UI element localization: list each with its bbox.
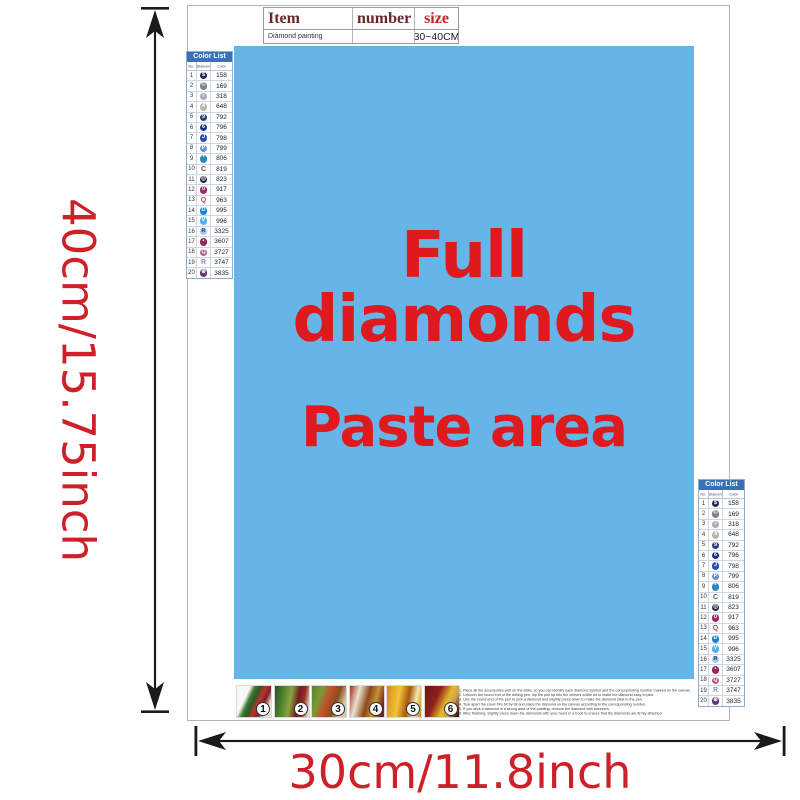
horizontal-shaft [218, 740, 764, 742]
dmc-color-code: 3747 [723, 686, 744, 695]
color-row: 10C819 [187, 165, 232, 175]
color-row-number: 9 [699, 582, 709, 591]
step-number-badge: 2 [294, 702, 308, 716]
step-number-badge: 6 [444, 702, 458, 716]
diamond-symbol-cell: • [197, 237, 211, 246]
dmc-color-code: 792 [723, 541, 744, 550]
dmc-color-code: 648 [211, 102, 232, 111]
dmc-color-code: 819 [211, 165, 232, 174]
vertical-shaft [154, 29, 156, 693]
diamond-symbol-cell: 9 [709, 541, 723, 550]
diamond-symbol-cell: V [197, 216, 211, 225]
diamond-symbol-glyph: • [203, 239, 205, 245]
dmc-color-code: 798 [211, 133, 232, 142]
diamond-color-dot-icon: $ [712, 500, 720, 508]
color-row-number: 3 [187, 92, 197, 101]
diamond-color-dot-icon: • [712, 666, 720, 674]
diamond-color-dot-icon: ≡ [200, 93, 208, 101]
diamond-symbol-glyph: • [715, 667, 717, 673]
diamond-symbol-cell: C [709, 593, 723, 602]
diamond-symbol-glyph: ⊕ [201, 270, 206, 276]
dmc-color-code: 796 [211, 123, 232, 132]
diamond-color-dot-icon: V [200, 217, 208, 225]
dmc-color-code: 3747 [211, 258, 232, 267]
color-column-header: Color [211, 62, 232, 70]
color-row: 66796 [187, 123, 232, 133]
diamond-symbol-cell: ◎ [709, 603, 723, 612]
color-row: 17•3607 [699, 665, 744, 675]
dmc-color-code: 996 [723, 644, 744, 653]
diamond-symbol-letter: C [713, 594, 718, 601]
item-table-header-row: Item number size [264, 8, 458, 30]
dmc-color-code: 806 [723, 582, 744, 591]
color-row-number: 12 [187, 185, 197, 194]
step-number-badge: 1 [256, 702, 270, 716]
color-row: 13Q963 [187, 196, 232, 206]
dmc-color-code: 3835 [723, 696, 744, 705]
color-row-number: 13 [187, 196, 197, 205]
color-row: 16R3325 [187, 227, 232, 237]
diamond-symbol-cell: • [709, 665, 723, 674]
diamond-symbol-cell: * [709, 582, 723, 591]
color-row: 7J798 [187, 133, 232, 143]
color-row-number: 1 [699, 499, 709, 508]
diamond-column-header: Diamond [197, 62, 211, 70]
color-row: 9*806 [699, 582, 744, 592]
color-row-number: 18 [699, 676, 709, 685]
paste-area-subtitle: Paste area [234, 400, 694, 456]
diamond-color-dot-icon: Q [200, 249, 208, 257]
dmc-color-code: 318 [723, 520, 744, 529]
dmc-color-code: 3727 [211, 248, 232, 257]
color-row: 120917 [187, 185, 232, 195]
diamond-symbol-letter: Q [201, 197, 206, 204]
diamond-symbol-glyph: 9 [714, 543, 717, 549]
color-row: 8P799 [699, 572, 744, 582]
dmc-color-code: 3607 [211, 237, 232, 246]
diamond-color-dot-icon: * [200, 155, 208, 163]
step-thumbnail: 5 [386, 685, 422, 718]
color-row-number: 1 [187, 71, 197, 80]
diamond-color-dot-icon: ≡ [712, 521, 720, 529]
diamond-color-dot-icon: P [712, 573, 720, 581]
diamond-symbol-glyph: 6 [714, 553, 717, 559]
top-end-bar [141, 7, 169, 10]
color-row: 9*806 [187, 154, 232, 164]
step-number-badge: 4 [369, 702, 383, 716]
dmc-color-code: 648 [723, 530, 744, 539]
color-list-rows: 1$1582©1693≡3184464859792667967J7988P799… [699, 499, 744, 706]
diamond-symbol-cell: $ [197, 71, 211, 80]
color-row-number: 8 [187, 144, 197, 153]
color-row-number: 15 [187, 216, 197, 225]
diamond-color-dot-icon: 9 [200, 114, 208, 122]
number-header-cell: number [352, 8, 414, 29]
dmc-color-code: 798 [723, 561, 744, 570]
color-row: 16R3325 [699, 655, 744, 665]
color-row: 120917 [699, 613, 744, 623]
diamond-symbol-glyph: D [714, 636, 718, 642]
item-size-table: Item number size Diamond painting 30~40C… [263, 7, 459, 44]
diamond-symbol-glyph: V [714, 646, 718, 652]
dmc-color-code: 917 [211, 185, 232, 194]
diamond-color-dot-icon: ◎ [200, 176, 208, 184]
color-row-number: 5 [699, 541, 709, 550]
color-row: 19R3747 [187, 258, 232, 268]
dmc-color-code: 169 [211, 81, 232, 90]
diamond-symbol-cell: 0 [709, 613, 723, 622]
color-row: 8P799 [187, 144, 232, 154]
diamond-column-header: Diamond [709, 490, 723, 498]
diamond-symbol-cell: Q [197, 196, 211, 205]
dmc-color-code: 823 [211, 175, 232, 184]
color-row: 2©169 [699, 509, 744, 519]
instruction-line: 6. After finishing, slightly press down … [459, 711, 719, 716]
step-thumbnail: 1 [236, 685, 272, 718]
diamond-symbol-cell: R [197, 227, 211, 236]
diamond-symbol-glyph: R [714, 657, 718, 663]
diamond-symbol-cell: ⊕ [197, 268, 211, 277]
diamond-symbol-glyph: V [202, 218, 206, 224]
bottom-end-bar [141, 710, 169, 713]
diamond-symbol-glyph: J [714, 563, 717, 569]
left-end-bar [195, 726, 198, 756]
item-value-cell: Diamond painting [264, 30, 352, 43]
diamond-symbol-cell: © [709, 509, 723, 518]
width-dimension-label: 30cm/11.8inch [289, 745, 632, 799]
diamond-symbol-letter: R [201, 259, 206, 266]
diamond-color-dot-icon: Q [712, 677, 720, 685]
dmc-color-code: 995 [211, 206, 232, 215]
color-row-number: 17 [187, 237, 197, 246]
diamond-symbol-cell: 0 [197, 185, 211, 194]
color-row-number: 9 [187, 154, 197, 163]
dmc-color-code: 3607 [723, 665, 744, 674]
color-row-number: 14 [699, 634, 709, 643]
color-row: 18Q3727 [699, 676, 744, 686]
step-thumbnail: 4 [349, 685, 385, 718]
canvas-poster: Item number size Diamond painting 30~40C… [187, 5, 730, 721]
diamond-symbol-glyph: 4 [202, 104, 205, 110]
color-row-number: 20 [187, 268, 197, 277]
diamond-symbol-cell: D [709, 634, 723, 643]
diamond-symbol-glyph: Q [201, 250, 205, 256]
diamond-symbol-glyph: P [202, 146, 206, 152]
color-row-number: 14 [187, 206, 197, 215]
diamond-color-dot-icon: © [200, 82, 208, 90]
color-list-left: Color List No. Diamond Color 1$1582©1693… [186, 51, 233, 279]
color-row: 44648 [187, 102, 232, 112]
diamond-symbol-cell: J [197, 133, 211, 142]
dmc-color-code: 963 [723, 624, 744, 633]
dmc-color-code: 3325 [211, 227, 232, 236]
diamond-symbol-glyph: 0 [714, 615, 717, 621]
color-row: 18Q3727 [187, 248, 232, 258]
diamond-symbol-glyph: R [202, 229, 206, 235]
color-row-number: 17 [699, 665, 709, 674]
diamond-symbol-glyph: ≡ [714, 522, 717, 528]
diamond-color-dot-icon: 6 [200, 124, 208, 132]
diamond-color-dot-icon: 9 [712, 542, 720, 550]
diamond-symbol-glyph: * [202, 156, 204, 162]
size-header-cell: size [414, 8, 458, 29]
dmc-color-code: 917 [723, 613, 744, 622]
diamond-symbol-cell: Q [709, 676, 723, 685]
diamond-symbol-cell: Q [197, 248, 211, 257]
color-row-number: 11 [699, 603, 709, 612]
height-dimension-label: 40cm/15.75inch [52, 198, 105, 562]
step-thumbnail: 2 [274, 685, 310, 718]
diamond-symbol-cell: C [197, 165, 211, 174]
no-column-header: No. [187, 62, 197, 70]
color-list-header-row: No. Diamond Color [699, 490, 744, 499]
color-row-number: 13 [699, 624, 709, 633]
color-row: 1$158 [187, 71, 232, 81]
diamond-color-dot-icon: 0 [712, 614, 720, 622]
step-thumbnails-strip: 123456 [236, 685, 460, 718]
diamond-symbol-cell: ◎ [197, 175, 211, 184]
diamond-symbol-letter: C [201, 166, 206, 173]
diamond-symbol-cell: ≡ [709, 520, 723, 529]
diamond-color-dot-icon: • [200, 238, 208, 246]
diamond-symbol-cell: R [709, 655, 723, 664]
diamond-symbol-cell: 4 [709, 530, 723, 539]
color-row: 59792 [187, 113, 232, 123]
color-row-number: 19 [187, 258, 197, 267]
dmc-color-code: 996 [211, 216, 232, 225]
vertical-dimension-arrow [139, 5, 171, 717]
dmc-color-code: 796 [723, 551, 744, 560]
diamond-symbol-glyph: © [713, 511, 717, 517]
diamond-symbol-glyph: D [202, 208, 206, 214]
diamond-symbol-glyph: $ [202, 73, 205, 79]
step-thumbnail: 3 [311, 685, 347, 718]
diamond-symbol-cell: P [709, 572, 723, 581]
diamond-symbol-cell: 9 [197, 113, 211, 122]
diamond-symbol-cell: R [197, 258, 211, 267]
diamond-color-dot-icon: J [712, 562, 720, 570]
color-row: 15V996 [187, 216, 232, 226]
dmc-color-code: 169 [723, 509, 744, 518]
diamond-symbol-glyph: P [714, 574, 718, 580]
diamond-color-dot-icon: 6 [712, 552, 720, 560]
color-row: 14D995 [699, 634, 744, 644]
color-row-number: 11 [187, 175, 197, 184]
diamond-symbol-glyph: ◎ [713, 605, 718, 611]
diamond-symbol-glyph: Q [713, 678, 717, 684]
dmc-color-code: 799 [211, 144, 232, 153]
color-row: 66796 [699, 551, 744, 561]
color-row: 3≡318 [187, 92, 232, 102]
color-row: 1$158 [699, 499, 744, 509]
diamond-symbol-glyph: J [202, 135, 205, 141]
color-list-header-row: No. Diamond Color [187, 62, 232, 71]
dmc-color-code: 963 [211, 196, 232, 205]
diamond-symbol-cell: 6 [197, 123, 211, 132]
diamond-color-dot-icon: * [712, 583, 720, 591]
diamond-color-dot-icon: R [712, 656, 720, 664]
diamond-symbol-cell: © [197, 81, 211, 90]
diamond-color-dot-icon: 4 [200, 103, 208, 111]
color-row: 2©169 [187, 81, 232, 91]
color-row-number: 6 [187, 123, 197, 132]
color-row: 15V996 [699, 644, 744, 654]
item-header-cell: Item [264, 8, 352, 29]
diamond-color-dot-icon: D [200, 207, 208, 215]
color-row: 10C819 [699, 593, 744, 603]
no-column-header: No. [699, 490, 709, 498]
color-row-number: 2 [187, 81, 197, 90]
dmc-color-code: 819 [723, 593, 744, 602]
color-row-number: 5 [187, 113, 197, 122]
item-table-value-row: Diamond painting 30~40CM [264, 30, 458, 43]
color-row-number: 6 [699, 551, 709, 560]
color-row-number: 7 [699, 561, 709, 570]
paste-area: Full diamonds Paste area [234, 46, 694, 679]
dmc-color-code: 3727 [723, 676, 744, 685]
color-row-number: 10 [187, 165, 197, 174]
diamond-color-dot-icon: R [200, 228, 208, 236]
color-row: 11◎823 [187, 175, 232, 185]
diamond-symbol-cell: $ [709, 499, 723, 508]
diamond-symbol-glyph: © [201, 83, 205, 89]
instructions-text: 1. Place all the accessories well on the… [459, 688, 719, 716]
color-row-number: 2 [699, 509, 709, 518]
diamond-symbol-cell: J [709, 561, 723, 570]
color-list-title: Color List [699, 480, 744, 490]
step-number-badge: 5 [406, 702, 420, 716]
step-number-badge: 3 [331, 702, 345, 716]
diamond-symbol-cell: D [197, 206, 211, 215]
diamond-color-dot-icon: V [712, 645, 720, 653]
dmc-color-code: 158 [723, 499, 744, 508]
color-row-number: 3 [699, 520, 709, 529]
color-row: 11◎823 [699, 603, 744, 613]
diamond-color-dot-icon: $ [200, 72, 208, 80]
diamond-symbol-glyph: 9 [202, 115, 205, 121]
dmc-color-code: 792 [211, 113, 232, 122]
diamond-symbol-cell: 4 [197, 102, 211, 111]
diamond-symbol-glyph: 4 [714, 532, 717, 538]
diamond-symbol-cell: V [709, 644, 723, 653]
diamond-color-dot-icon: 0 [200, 186, 208, 194]
color-row-number: 16 [187, 227, 197, 236]
dmc-color-code: 318 [211, 92, 232, 101]
color-list-title: Color List [187, 52, 232, 62]
color-row: 13Q963 [699, 624, 744, 634]
dmc-color-code: 799 [723, 572, 744, 581]
color-list-rows: 1$1582©1693≡3184464859792667967J7988P799… [187, 71, 232, 278]
diamond-symbol-letter: Q [713, 625, 718, 632]
diamond-color-dot-icon: © [712, 510, 720, 518]
step-thumbnail: 6 [424, 685, 460, 718]
color-row-number: 18 [187, 248, 197, 257]
color-row-number: 16 [699, 655, 709, 664]
right-end-bar [783, 726, 786, 756]
color-row: 17•3607 [187, 237, 232, 247]
dmc-color-code: 3325 [723, 655, 744, 664]
color-row-number: 4 [187, 102, 197, 111]
diamond-symbol-cell: ≡ [197, 92, 211, 101]
diamond-symbol-glyph: ◎ [201, 177, 206, 183]
diamond-symbol-glyph: ≡ [202, 94, 205, 100]
color-row: 44648 [699, 530, 744, 540]
diamond-symbol-glyph: 6 [202, 125, 205, 131]
diamond-symbol-cell: P [197, 144, 211, 153]
diamond-color-dot-icon: D [712, 635, 720, 643]
dmc-color-code: 823 [723, 603, 744, 612]
color-row-number: 8 [699, 572, 709, 581]
diamond-color-dot-icon: ⊕ [200, 269, 208, 277]
color-row: 59792 [699, 541, 744, 551]
diamond-symbol-glyph: $ [714, 501, 717, 507]
dmc-color-code: 158 [211, 71, 232, 80]
color-column-header: Color [723, 490, 744, 498]
diamond-symbol-cell: 6 [709, 551, 723, 560]
diamond-painting-size-chart: 40cm/15.75inch Item number size Diamond … [0, 0, 800, 800]
dmc-color-code: 806 [211, 154, 232, 163]
diamond-color-dot-icon: 4 [712, 531, 720, 539]
color-list-right: Color List No. Diamond Color 1$1582©1693… [698, 479, 745, 707]
color-row-number: 4 [699, 530, 709, 539]
size-value-cell: 30~40CM [414, 30, 458, 43]
color-row-number: 7 [187, 133, 197, 142]
color-row-number: 15 [699, 644, 709, 653]
color-row: 14D995 [187, 206, 232, 216]
diamond-color-dot-icon: ◎ [712, 604, 720, 612]
diamond-symbol-glyph: 0 [202, 187, 205, 193]
color-row: 3≡318 [699, 520, 744, 530]
color-row: 20⊕3835 [187, 268, 232, 277]
number-value-cell [352, 30, 414, 43]
color-row-number: 12 [699, 613, 709, 622]
color-row-number: 10 [699, 593, 709, 602]
diamond-symbol-cell: * [197, 154, 211, 163]
diamond-symbol-cell: Q [709, 624, 723, 633]
color-row: 7J798 [699, 561, 744, 571]
diamond-color-dot-icon: J [200, 134, 208, 142]
diamond-color-dot-icon: P [200, 145, 208, 153]
paste-area-title: Full diamonds [234, 224, 694, 352]
dmc-color-code: 995 [723, 634, 744, 643]
diamond-symbol-glyph: * [714, 584, 716, 590]
dmc-color-code: 3835 [211, 268, 232, 277]
